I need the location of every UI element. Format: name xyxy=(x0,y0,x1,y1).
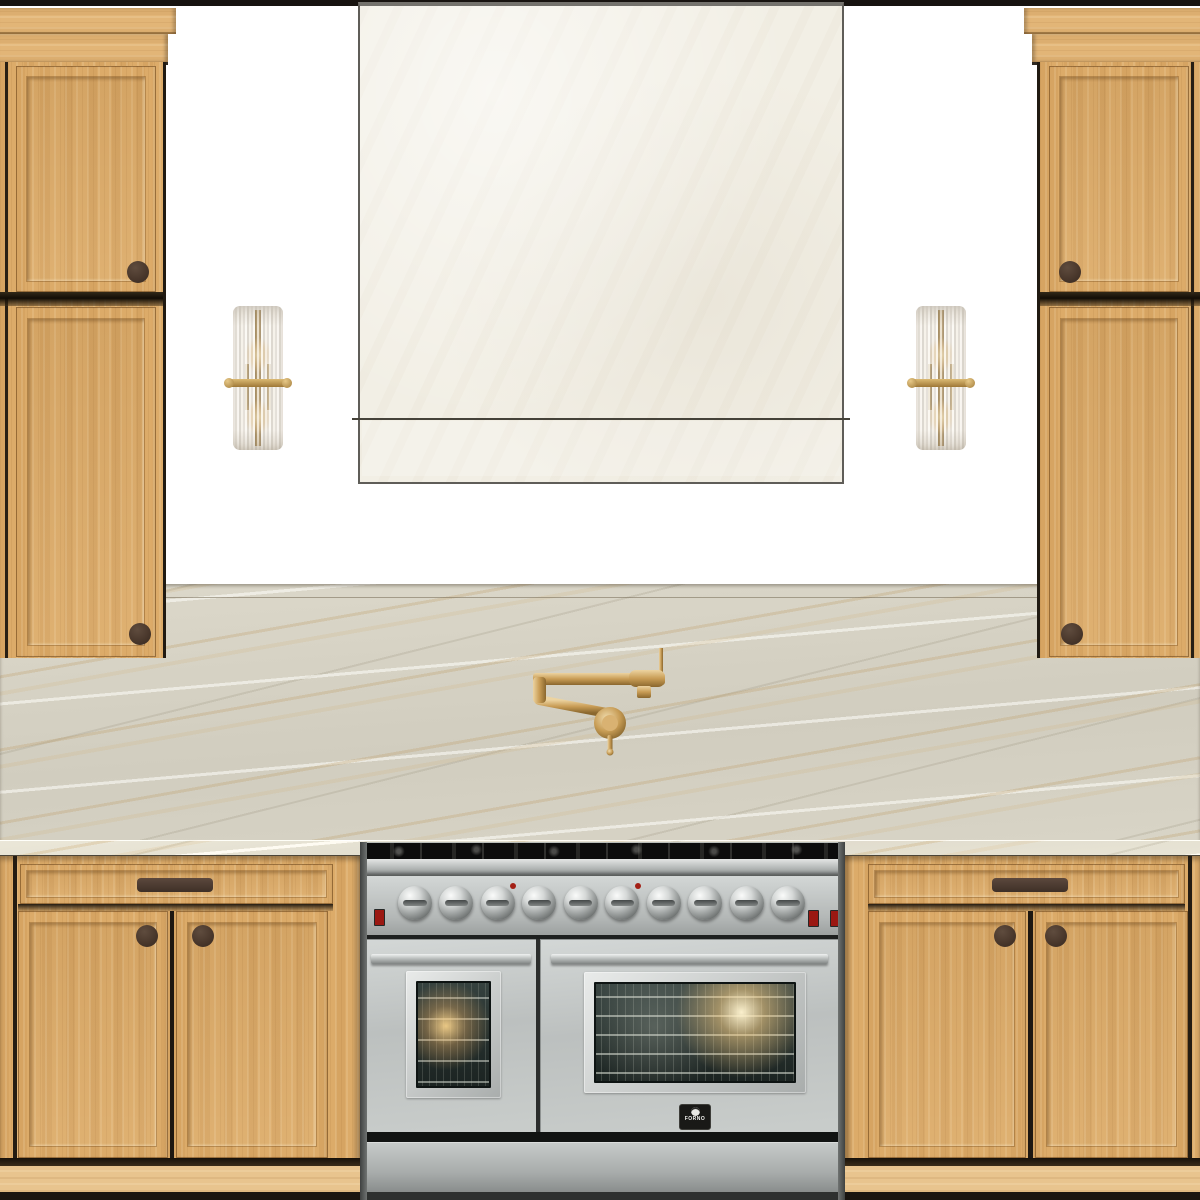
range-burner-knob xyxy=(439,886,473,920)
pot-filler-valve-body xyxy=(629,670,665,687)
range-left-oven-handle xyxy=(371,954,531,964)
pot-filler-elbow xyxy=(533,677,546,703)
range-burner-knob xyxy=(730,886,764,920)
sconce-bracket xyxy=(910,379,972,387)
range-burner-knob xyxy=(647,886,681,920)
tall-cabinet-left-lower-knob xyxy=(129,623,151,645)
pot-filler-spout xyxy=(637,686,651,698)
range-control-panel xyxy=(360,876,845,935)
base-left-door-b-knob xyxy=(192,925,214,947)
forno-logo-text: FORNO xyxy=(680,1116,710,1122)
range-indicator-light xyxy=(635,883,641,889)
range-burner-knob xyxy=(688,886,722,920)
tall-cabinet-left-divider xyxy=(0,292,163,306)
base-right-drawer-pull xyxy=(992,878,1068,892)
range-side-left xyxy=(360,842,367,1200)
range-side-right xyxy=(838,842,845,1200)
range-bottom-edge xyxy=(360,1192,845,1200)
wall-sconce-right xyxy=(916,306,966,450)
tall-cabinet-right-upper-knob xyxy=(1059,261,1081,283)
range-knob-row xyxy=(360,876,845,935)
range-right-oven-door: FORNO xyxy=(540,939,841,1134)
tall-cabinet-left-lower-door xyxy=(16,307,156,657)
hood-reveal-line xyxy=(352,418,850,420)
wall-sconce-left xyxy=(233,306,283,450)
range-cooktop-edge xyxy=(360,859,845,876)
range-door-gap xyxy=(536,939,540,1132)
range-lower-gap xyxy=(360,1132,845,1142)
range-power-switch xyxy=(808,910,819,927)
base-right-drawer-gap xyxy=(868,904,1185,911)
base-right-door-b-knob xyxy=(1045,925,1067,947)
base-left-door-a-knob xyxy=(136,925,158,947)
sconce-fluted-glass xyxy=(916,306,966,450)
range-left-oven-window xyxy=(406,971,501,1098)
base-right-end-seam xyxy=(1188,856,1192,1163)
base-left-drawer-gap xyxy=(18,904,333,911)
pot-filler xyxy=(525,645,675,760)
range-burner-knob xyxy=(398,886,432,920)
crown-molding-left-top xyxy=(0,8,176,34)
range-cooktop-grates xyxy=(360,842,845,859)
tall-cabinet-left-upper-knob xyxy=(127,261,149,283)
range-burner-knob xyxy=(771,886,805,920)
range-forno-48in: FORNO xyxy=(360,842,845,1200)
forno-logo-mark xyxy=(691,1107,700,1116)
tall-cabinet-left-panel-seam xyxy=(5,62,8,658)
range-indicator-light xyxy=(510,883,516,889)
range-burner-knob xyxy=(605,886,639,920)
hood-bottom-band xyxy=(362,421,840,476)
base-left-door-a xyxy=(18,911,168,1158)
tall-cabinet-right-upper-door xyxy=(1049,66,1189,292)
range-hood xyxy=(358,2,844,484)
kitchen-elevation: FORNO xyxy=(0,0,1200,1200)
tall-cabinet-right-panel-seam xyxy=(1191,62,1194,658)
sconce-bracket xyxy=(227,379,289,387)
range-left-oven-glass xyxy=(416,981,491,1088)
crown-molding-right-top xyxy=(1024,8,1200,34)
base-left-door-b xyxy=(176,911,328,1158)
range-brand-badge: FORNO xyxy=(679,1104,711,1130)
range-right-oven-handle xyxy=(551,954,828,964)
range-burner-knob xyxy=(522,886,556,920)
range-burner-knob xyxy=(564,886,598,920)
base-right-door-stile xyxy=(1028,911,1033,1158)
base-right-door-a xyxy=(868,911,1026,1158)
base-left-end-seam xyxy=(13,856,17,1163)
sconce-fluted-glass xyxy=(233,306,283,450)
range-right-oven-window xyxy=(584,972,806,1093)
tall-cabinet-right-divider xyxy=(1040,292,1200,306)
crown-molding-left-bottom xyxy=(0,34,168,65)
base-left-door-stile xyxy=(170,911,174,1158)
base-left-drawer-pull xyxy=(137,878,213,892)
range-power-switch xyxy=(374,909,385,926)
range-left-oven-door xyxy=(366,939,538,1134)
pot-filler-lower-arm xyxy=(539,700,607,713)
tall-cabinet-right-lower-knob xyxy=(1061,623,1083,645)
range-burner-knob xyxy=(481,886,515,920)
crown-molding-right-bottom xyxy=(1032,34,1200,65)
base-right-door-b xyxy=(1035,911,1188,1158)
backsplash-seam-line xyxy=(0,597,1200,598)
range-storage-drawer xyxy=(360,1142,845,1192)
base-right-door-a-knob xyxy=(994,925,1016,947)
range-right-oven-glass xyxy=(594,982,796,1083)
tall-cabinet-right-lower-door xyxy=(1049,307,1189,657)
tall-cabinet-left-upper-door xyxy=(16,66,156,292)
